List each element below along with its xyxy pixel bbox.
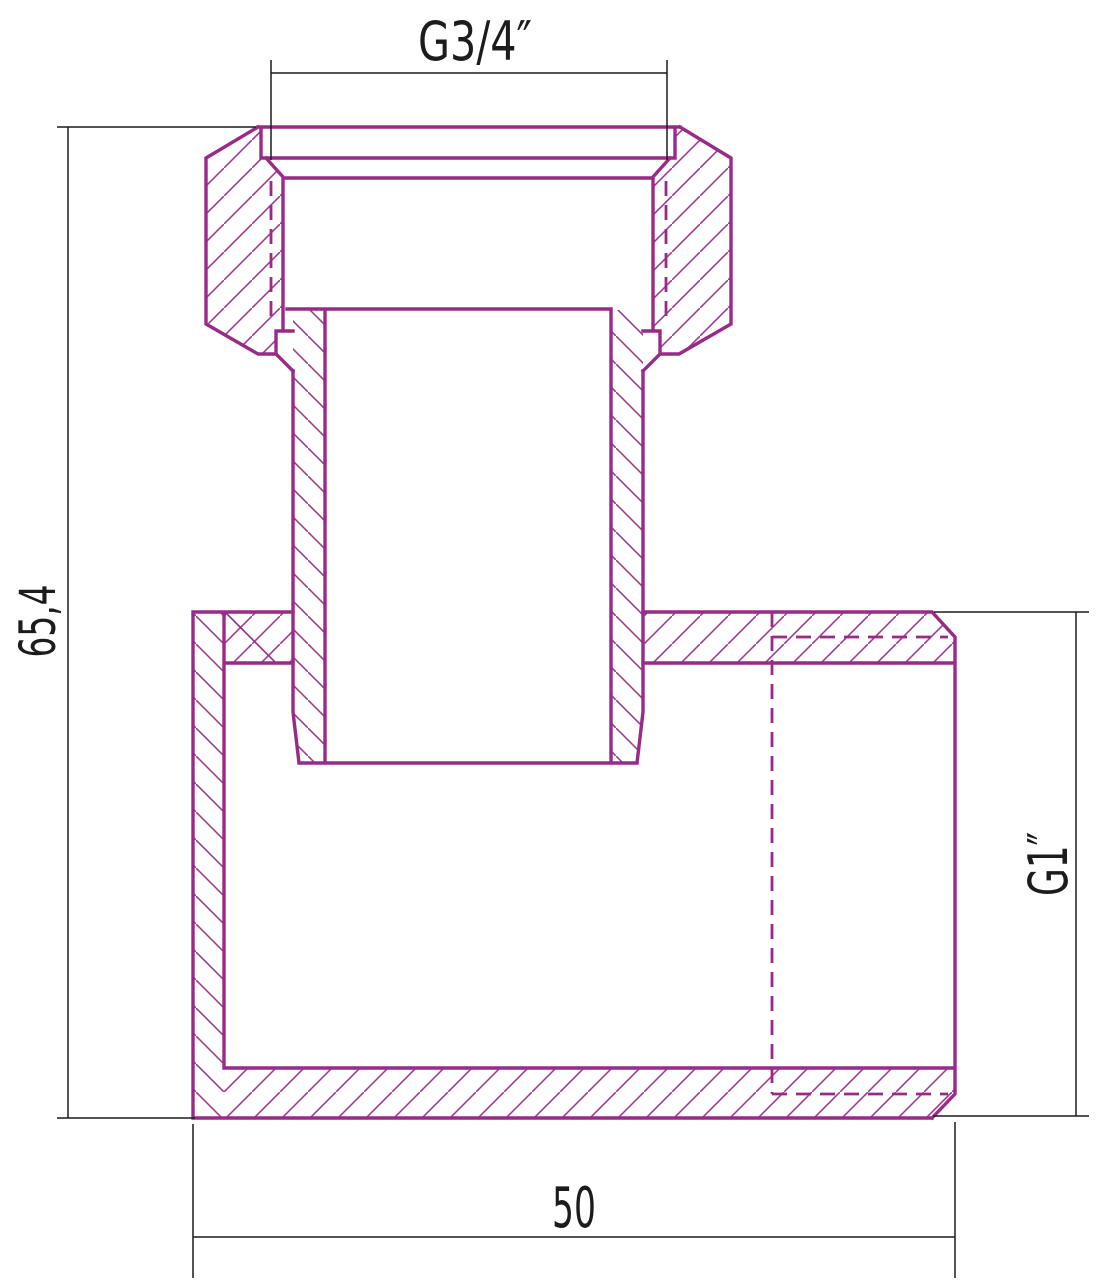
tube-right-wall-hatch bbox=[611, 310, 643, 762]
label-side-thread: G1″ bbox=[1017, 832, 1080, 896]
label-top-thread: G3/4″ bbox=[418, 10, 532, 73]
body-left-wall-hatch bbox=[193, 612, 224, 1118]
section-hatching bbox=[193, 127, 955, 1118]
dim-top-extension-lines bbox=[271, 60, 667, 160]
label-overall-width: 50 bbox=[552, 1176, 596, 1241]
nut-outline bbox=[206, 127, 731, 371]
tube-left-wall-hatch bbox=[293, 310, 325, 762]
fitting-section-drawing: G3/4″ 65,4 G1″ 50 bbox=[0, 0, 1108, 1280]
label-overall-height: 65,4 bbox=[9, 585, 67, 658]
tailpiece-outline bbox=[287, 309, 643, 763]
body-top-flange-left-hatch bbox=[224, 612, 293, 663]
drawing-canvas: G3/4″ 65,4 G1″ 50 bbox=[0, 0, 1108, 1280]
